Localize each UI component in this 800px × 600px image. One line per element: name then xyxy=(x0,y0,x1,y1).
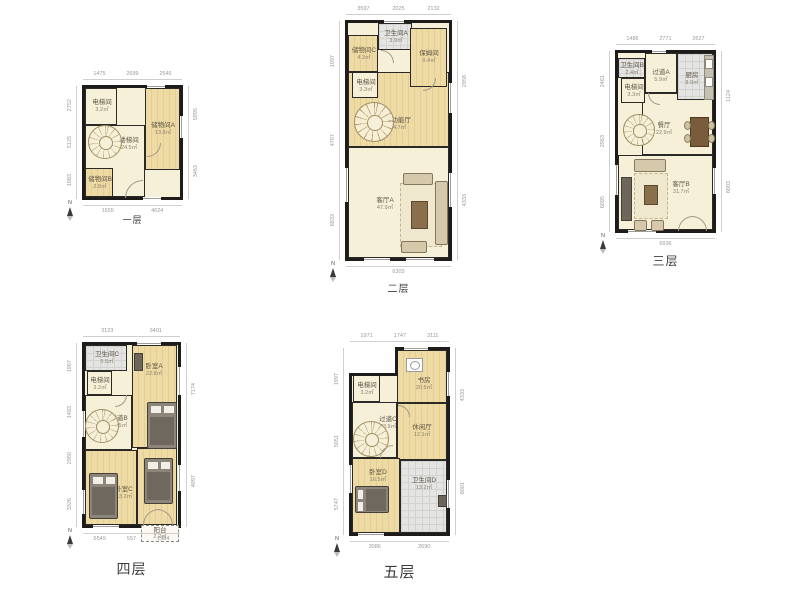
sofa-icon xyxy=(403,173,433,185)
floor-title-floor-4: 四层 xyxy=(117,559,147,579)
window xyxy=(178,367,181,395)
dimension-col-right: 71744997 xyxy=(189,343,199,527)
spiral-stair-icon xyxy=(354,102,394,142)
dimension-col-right: 11248003 xyxy=(724,51,734,232)
room-name-label: 过道C xyxy=(379,416,397,424)
dimension-row-bottom: 55495571984 xyxy=(83,535,180,543)
room-name-label: 电梯间 xyxy=(357,382,377,390)
window-line xyxy=(714,168,715,194)
dimension-label: 2699 xyxy=(126,71,138,77)
compass-needle xyxy=(600,240,606,249)
dimension-label: 3086 xyxy=(369,544,381,550)
room-name-label: 卫生间C xyxy=(95,351,119,359)
window-line xyxy=(137,343,161,344)
window-line xyxy=(83,411,84,437)
dimension-col-right: 43338001 xyxy=(458,348,468,535)
dimension-label: 2752 xyxy=(67,99,73,111)
north-label: N xyxy=(330,537,344,543)
dimension-row-bottom: 6303 xyxy=(346,268,451,276)
bed-icon xyxy=(355,486,389,513)
north-compass-icon: N xyxy=(63,529,77,549)
room-area-label: 24.5㎡ xyxy=(119,145,139,152)
floor-plan-floor-3: 餐厅22.9㎡客厅B31.7㎡卫生间B2.4㎡过道A5.9㎡厨房8.9㎡电梯间3… xyxy=(615,50,716,233)
dimension-row-top: 31233401 xyxy=(83,327,180,335)
window xyxy=(652,50,666,53)
dimension-row-top: 197117473111 xyxy=(350,332,449,340)
compass-needle xyxy=(330,277,336,282)
room-label: 卫生间A3.9㎡ xyxy=(384,30,408,44)
window xyxy=(358,533,384,536)
room-area-label: 5.9㎡ xyxy=(652,77,669,84)
room-area-label: 47.9㎡ xyxy=(376,205,393,212)
dimension-col-left: 199750515747 xyxy=(332,348,342,535)
window-line xyxy=(83,490,84,514)
spiral-stair-icon xyxy=(85,409,119,443)
room-area-label: 3.2㎡ xyxy=(357,390,377,397)
window xyxy=(615,165,618,195)
window xyxy=(713,168,716,194)
room-area-label: 22.9㎡ xyxy=(656,130,672,137)
cabinet-icon xyxy=(621,177,632,221)
room-name-label: 电梯间 xyxy=(92,99,112,107)
dimension-label: 1655 xyxy=(102,208,114,214)
room-name-label: 卫生间D xyxy=(412,477,436,485)
dimension-label: 3326 xyxy=(67,498,73,510)
room-name-label: 储物间A xyxy=(151,122,175,130)
room-label: 卫生间B2.4㎡ xyxy=(620,62,644,76)
dimension-line xyxy=(76,343,77,527)
dimension-line xyxy=(339,21,340,260)
dimension-line xyxy=(609,51,610,232)
dimension-line xyxy=(76,86,77,199)
window xyxy=(349,465,352,493)
dimension-label: 1997 xyxy=(330,55,336,67)
room-area-label: 31.7㎡ xyxy=(672,189,689,196)
dimension-label: 5125 xyxy=(67,136,73,148)
dimension-label: 1967 xyxy=(67,360,73,372)
compass-needle xyxy=(67,207,73,216)
dimension-row-top: 147526992546 xyxy=(83,70,182,78)
window xyxy=(447,372,450,396)
dimension-label: 6303 xyxy=(392,269,404,275)
window-line xyxy=(448,372,449,396)
floor-title-floor-1: 一层 xyxy=(122,213,142,226)
room-elevator-room: 电梯间3.2㎡ xyxy=(85,88,117,125)
room-name-label: 卧室A xyxy=(145,363,162,371)
dimension-label: 5995 xyxy=(193,108,199,120)
window xyxy=(449,83,452,113)
north-compass-icon: N xyxy=(596,234,610,254)
dimension-label: 2627 xyxy=(692,36,704,42)
dimension-line xyxy=(616,238,715,239)
room-label: 卫生间D13.2㎡ xyxy=(412,477,436,491)
dimension-row-top: 148627712627 xyxy=(616,35,715,43)
window xyxy=(178,465,181,491)
compass-needle xyxy=(67,216,73,221)
dimension-label: 2960 xyxy=(67,452,73,464)
coffee-table-icon xyxy=(644,185,658,205)
compass-needle xyxy=(334,552,340,557)
room-name-label: 卧室D xyxy=(369,469,387,477)
room-area-label: 5.5㎡ xyxy=(95,359,119,366)
room-area-label: 3.2㎡ xyxy=(92,107,112,114)
window-line xyxy=(358,534,384,535)
room-label: 卧室A22.8㎡ xyxy=(145,363,162,377)
dimension-label: 557 xyxy=(127,536,136,542)
bed-icon xyxy=(144,458,173,504)
dimension-label: 3597 xyxy=(357,6,369,12)
room-area-label: 2.8㎡ xyxy=(88,184,112,191)
room-label: 厨房8.9㎡ xyxy=(685,72,698,86)
pillow-icon xyxy=(357,501,364,512)
dimension-line xyxy=(616,44,715,45)
north-compass-icon: N xyxy=(330,537,344,557)
room-storage-room-a: 储物间A13.8㎡ xyxy=(145,88,180,170)
dimension-label: 4333 xyxy=(462,194,468,206)
dimension-label: 4767 xyxy=(330,134,336,146)
dimension-label: 3463 xyxy=(193,165,199,177)
north-compass-icon: N xyxy=(326,262,340,282)
window xyxy=(364,258,390,261)
room-area-label: 16.5㎡ xyxy=(369,477,387,484)
window-line xyxy=(179,465,180,491)
room-name-label: 客厅A xyxy=(376,197,393,205)
room-label: 储物间A13.8㎡ xyxy=(151,122,175,136)
dimension-label: 2461 xyxy=(600,75,606,87)
dimension-label: 1747 xyxy=(394,333,406,339)
dimension-label: 1983 xyxy=(67,174,73,186)
room-area-label: 22.8㎡ xyxy=(145,371,162,378)
room-label: 电梯间3.2㎡ xyxy=(90,377,110,391)
dimension-col-left: 246129636095 xyxy=(598,51,608,232)
window-line xyxy=(346,168,347,202)
floor-plan-floor-1: 电梯间3.2㎡储物间A13.8㎡楼梯间24.5㎡储物间B2.8㎡14752699… xyxy=(82,85,183,200)
dimension-label: 8003 xyxy=(726,181,732,193)
dimension-label: 1997 xyxy=(334,373,340,385)
chair-icon xyxy=(684,134,691,143)
room-elevator-room: 电梯间3.2㎡ xyxy=(87,371,112,395)
compass-needle xyxy=(67,544,73,549)
coffee-table-icon xyxy=(411,201,428,229)
window-line xyxy=(350,465,351,493)
room-area-label: 4.3㎡ xyxy=(352,55,376,62)
chair-icon xyxy=(708,134,715,143)
window xyxy=(345,168,348,202)
pillow-icon xyxy=(163,405,175,414)
appliance-icon xyxy=(705,59,713,69)
window xyxy=(180,116,183,138)
room-name-label: 客厅B xyxy=(672,181,689,189)
north-label: N xyxy=(63,201,77,207)
dimension-line xyxy=(188,86,189,199)
room-label: 过道A5.9㎡ xyxy=(652,69,669,83)
room-storage-room-c: 储物间C4.3㎡ xyxy=(348,35,378,72)
dimension-label: 1124 xyxy=(726,90,732,102)
blanket-icon xyxy=(92,487,116,515)
room-label: 储物间C4.3㎡ xyxy=(352,47,376,61)
dimension-label: 2963 xyxy=(600,135,606,147)
window-line xyxy=(406,259,434,260)
pillow-icon xyxy=(92,476,104,485)
window-line xyxy=(181,116,182,138)
room-name-label: 电梯间 xyxy=(624,84,644,92)
dimension-label: 3111 xyxy=(427,333,438,339)
dimension-line xyxy=(343,348,344,535)
room-corridor-a: 过道A5.9㎡ xyxy=(645,53,677,93)
floorplan-sheet: 电梯间3.2㎡储物间A13.8㎡楼梯间24.5㎡储物间B2.8㎡14752699… xyxy=(0,0,800,600)
pillow-icon xyxy=(357,489,364,500)
sofa-icon xyxy=(435,181,448,245)
dimension-label: 5549 xyxy=(94,536,106,542)
wall-notch xyxy=(349,347,398,376)
dimension-label: 3123 xyxy=(101,328,113,334)
room-area-label: 3.9㎡ xyxy=(384,38,408,45)
dimension-line xyxy=(83,336,180,337)
window xyxy=(147,85,165,88)
floor-plan-floor-5: 书房20.5㎡休闲厅12.1㎡过道C23.9㎡卧室D16.5㎡卫生间D13.2㎡… xyxy=(349,347,450,536)
blanket-icon xyxy=(150,417,175,446)
room-label: 电梯间3.2㎡ xyxy=(92,99,112,113)
bed-icon xyxy=(147,402,177,449)
room-area-label: 20.5㎡ xyxy=(416,385,432,392)
north-label: N xyxy=(63,529,77,535)
window xyxy=(384,20,404,23)
window xyxy=(447,480,450,508)
window xyxy=(143,197,161,200)
dimension-row-top: 359720252132 xyxy=(346,5,451,13)
cabinet-icon xyxy=(438,495,447,507)
sofa-icon xyxy=(401,241,427,253)
room-elevator-room: 电梯间3.3㎡ xyxy=(352,72,378,98)
window-line xyxy=(450,83,451,113)
dimension-line xyxy=(350,341,449,342)
dimension-label: 4624 xyxy=(151,208,163,214)
pillow-icon xyxy=(160,461,172,470)
window-line xyxy=(364,259,390,260)
room-area-label: 13.8㎡ xyxy=(151,130,175,137)
floor-plan-floor-2: 多功能厅34.7㎡客厅A47.9㎡储物间C4.3㎡卫生间A3.9㎡保姆间9.4㎡… xyxy=(345,20,452,261)
dimension-line xyxy=(721,51,722,232)
room-name-label: 楼梯间 xyxy=(119,137,139,145)
dimension-line xyxy=(186,343,187,527)
appliance-icon xyxy=(705,77,713,87)
room-area-label: 3.3㎡ xyxy=(356,87,376,94)
window xyxy=(404,347,428,350)
room-area-label: 3.3㎡ xyxy=(624,92,644,99)
floor-title-floor-2: 二层 xyxy=(388,280,410,295)
room-bathroom-b: 卫生间B2.4㎡ xyxy=(618,58,645,78)
dimension-label: 4997 xyxy=(191,475,197,487)
north-label: N xyxy=(596,234,610,240)
compass-needle xyxy=(330,268,336,277)
room-storage-room-b: 储物间B2.8㎡ xyxy=(85,168,113,197)
room-name-label: 储物间B xyxy=(88,176,112,184)
room-name-label: 厨房 xyxy=(685,72,698,80)
room-label: 楼梯间24.5㎡ xyxy=(119,137,139,151)
pillow-icon xyxy=(150,405,162,414)
compass-needle xyxy=(334,543,340,552)
pillow-icon xyxy=(147,461,159,470)
dimension-label: 2690 xyxy=(418,544,430,550)
dimension-label: 1475 xyxy=(93,71,105,77)
window-line xyxy=(652,51,666,52)
blanket-icon xyxy=(147,472,171,500)
cabinet-icon xyxy=(134,353,143,371)
dimension-label: 2771 xyxy=(659,36,671,42)
dimension-label: 5747 xyxy=(334,498,340,510)
dimension-col-left: 199747676833 xyxy=(328,21,338,260)
room-label: 保姆间9.4㎡ xyxy=(419,50,439,64)
room-label: 书房20.5㎡ xyxy=(416,377,432,391)
window-line xyxy=(384,21,404,22)
sofa-icon xyxy=(651,220,664,231)
dimension-label: 7174 xyxy=(191,383,197,395)
window xyxy=(449,173,452,207)
dimension-label: 1483 xyxy=(67,406,73,418)
window xyxy=(406,258,434,261)
compass-needle xyxy=(600,249,606,254)
room-name-label: 卫生间B xyxy=(620,62,644,70)
room-elevator-room: 电梯间3.2㎡ xyxy=(353,375,380,402)
room-label: 休闲厅12.1㎡ xyxy=(412,424,432,438)
room-label: 电梯间3.3㎡ xyxy=(356,79,376,93)
room-name-label: 餐厅 xyxy=(656,122,672,130)
dimension-col-left: 1967148329603326 xyxy=(65,343,75,527)
dimension-label: 3401 xyxy=(150,328,162,334)
window-line xyxy=(448,480,449,508)
window xyxy=(137,342,161,345)
room-name-label: 电梯间 xyxy=(356,79,376,87)
room-name-label: 卫生间A xyxy=(384,30,408,38)
window-line xyxy=(179,367,180,395)
dimension-label: 2132 xyxy=(427,6,439,12)
window-line xyxy=(147,86,165,87)
dimension-line xyxy=(455,348,456,535)
dimension-row-bottom: 6936 xyxy=(616,240,715,248)
washer-icon xyxy=(406,358,423,372)
room-label: 储物间B2.8㎡ xyxy=(88,176,112,190)
blanket-icon xyxy=(366,489,386,511)
room-name-label: 过道A xyxy=(652,69,669,77)
sofa-icon xyxy=(634,159,666,172)
dimension-label: 8001 xyxy=(460,482,466,494)
dimension-line xyxy=(346,266,451,267)
dimension-label: 6833 xyxy=(330,214,336,226)
dimension-line xyxy=(83,533,180,534)
dimension-label: 2546 xyxy=(159,71,171,77)
room-label: 电梯间3.3㎡ xyxy=(624,84,644,98)
window-line xyxy=(93,526,119,527)
window-line xyxy=(404,348,428,349)
room-label: 卧室D16.5㎡ xyxy=(369,469,387,483)
floor-plan-floor-4: 卧室A22.8㎡过道B24.5㎡卧室C13.2㎡卧室B13.4㎡卫生间C5.5㎡… xyxy=(82,342,181,528)
north-label: N xyxy=(326,262,340,268)
north-compass-icon: N xyxy=(63,201,77,221)
bed-icon xyxy=(89,473,118,519)
floor-title-floor-5: 五层 xyxy=(383,561,415,582)
dimension-label: 2025 xyxy=(392,6,404,12)
dimension-label: 1984 xyxy=(157,536,169,542)
room-name-label: 休闲厅 xyxy=(412,424,432,432)
dimension-label: 6936 xyxy=(659,241,671,247)
room-area-label: 12.1㎡ xyxy=(412,432,432,439)
room-label: 电梯间3.2㎡ xyxy=(357,382,377,396)
sofa-icon xyxy=(634,220,647,231)
spiral-stair-icon xyxy=(623,114,655,146)
room-area-label: 2.4㎡ xyxy=(620,70,644,77)
dimension-label: 1971 xyxy=(361,333,373,339)
dimension-line xyxy=(346,14,451,15)
room-label: 餐厅22.9㎡ xyxy=(656,122,672,136)
window-line xyxy=(616,165,617,195)
floor-title-floor-3: 三层 xyxy=(652,252,678,269)
dimension-label: 5051 xyxy=(334,435,340,447)
dimension-line xyxy=(83,205,182,206)
room-area-label: 8.9㎡ xyxy=(685,80,698,87)
room-bathroom-a: 卫生间A3.9㎡ xyxy=(378,23,412,50)
compass-needle xyxy=(67,535,73,544)
dimension-col-left: 275251251983 xyxy=(65,86,75,199)
window-line xyxy=(628,231,656,232)
room-name-label: 储物间C xyxy=(352,47,376,55)
chair-icon xyxy=(708,121,715,130)
spiral-stair-icon xyxy=(88,125,122,159)
dining-table-icon xyxy=(690,117,709,147)
dimension-line xyxy=(83,79,182,80)
room-label: 客厅B31.7㎡ xyxy=(672,181,689,195)
window xyxy=(82,490,85,514)
dimension-label: 6095 xyxy=(600,196,606,208)
room-name-label: 书房 xyxy=(416,377,432,385)
room-area-label: 9.4㎡ xyxy=(419,58,439,65)
room-label: 客厅A47.9㎡ xyxy=(376,197,393,211)
dimension-line xyxy=(457,21,458,260)
window-line xyxy=(450,173,451,207)
dimension-col-right: 29584333 xyxy=(460,21,470,260)
room-area-label: 3.2㎡ xyxy=(90,385,110,392)
chair-icon xyxy=(684,121,691,130)
room-label: 卫生间C5.5㎡ xyxy=(95,351,119,365)
window xyxy=(93,525,119,528)
dimension-label: 4333 xyxy=(460,389,466,401)
dimension-col-right: 59953463 xyxy=(191,86,201,199)
dimension-label: 1486 xyxy=(626,36,638,42)
room-bathroom-c: 卫生间C5.5㎡ xyxy=(85,345,127,371)
room-name-label: 电梯间 xyxy=(90,377,110,385)
room-area-label: 13.2㎡ xyxy=(412,485,436,492)
dimension-line xyxy=(350,541,449,542)
room-elevator-room: 电梯间3.3㎡ xyxy=(621,78,645,103)
door-arc-icon xyxy=(381,50,394,63)
pillow-icon xyxy=(105,476,117,485)
room-name-label: 保姆间 xyxy=(419,50,439,58)
dimension-row-bottom: 30862690 xyxy=(350,543,449,551)
dimension-label: 2958 xyxy=(462,75,468,87)
window-line xyxy=(143,198,161,199)
